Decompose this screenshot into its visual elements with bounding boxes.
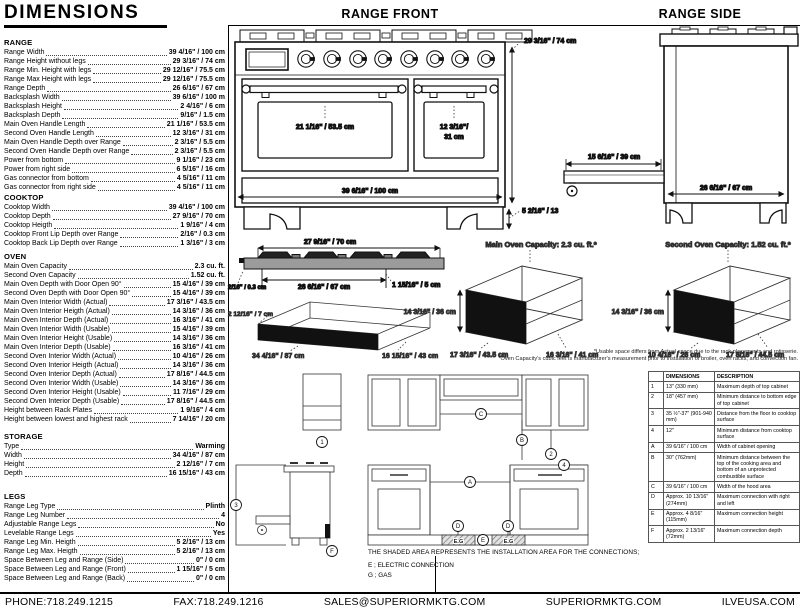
dotted-leader: [124, 287, 171, 288]
install-marker: D: [453, 521, 464, 532]
spec-value: 2 3/16" / 5.5 cm: [175, 138, 225, 147]
range-width-dim: 39 6/16" / 100 cm: [342, 188, 398, 195]
capacity-footnotes: *Usable space differs from Actual space …: [428, 349, 798, 363]
spec-row: Second Oven Interior Depth (Usable)17 8/…: [4, 397, 225, 406]
burner-pans: [258, 252, 430, 258]
spec-value: 17 3/16" / 43.5 cm: [167, 298, 225, 307]
spec-label: Main Oven Capacity: [4, 262, 67, 271]
description: Width of cabinet opening: [715, 442, 800, 452]
spec-row: Gas connector from right side4 5/16" / 1…: [4, 183, 225, 192]
spec-value: 9/16" / 1.5 cm: [180, 111, 225, 120]
range-side-diagram: 15 6/16" / 39 cm 26 6/16" / 67 cm: [564, 27, 798, 223]
dotted-leader: [128, 572, 175, 573]
col-dimensions: DIMENSIONS: [664, 372, 715, 382]
spec-label: Height: [4, 460, 24, 469]
range-front-title: RANGE FRONT: [333, 7, 446, 21]
spec-value: 0" / 0 cm: [196, 574, 225, 583]
dotted-leader: [98, 190, 175, 191]
burner-icon: [316, 30, 380, 42]
description: Minimum distance to bottom edge of top c…: [715, 392, 800, 409]
spec-row: Range Min. Height with legs29 12/16" / 7…: [4, 66, 225, 75]
col-description: DESCRIPTION: [715, 372, 800, 382]
range-front-diagram: 21 1/16" / 53.5 cm 12 3/16"/ 31 cm 39 6/…: [235, 30, 576, 229]
spec-row: TypeWarming: [4, 442, 225, 451]
marker-label: F: [330, 549, 334, 555]
dotted-leader: [62, 100, 171, 101]
spec-row: Main Oven Depth with Door Open 90°15 4/1…: [4, 280, 225, 289]
dotted-leader: [113, 350, 171, 351]
dimension-value: 35 ½"-37" (901-940 mm): [664, 409, 715, 426]
install-marker: C: [476, 409, 487, 420]
marker-label: D: [506, 524, 511, 530]
storage-height-dim: 2 12/16" / 7 cm: [228, 311, 273, 318]
spec-label: Cooktop Front Lip Depth over Range: [4, 230, 118, 239]
cooktop-depth-dim: 27 9/16" / 70 cm: [304, 239, 356, 246]
spec-section-cooktop: COOKTOPCooktop Width39 4/16" / 100 cmCoo…: [4, 193, 225, 248]
spec-value: 1 3/16" / 3 cm: [180, 239, 225, 248]
email-link[interactable]: SALES@SUPERIORMKTG.COM: [324, 596, 486, 608]
burner-connector: [382, 33, 390, 38]
marker-label: C: [479, 412, 484, 418]
dotted-leader: [93, 82, 161, 83]
oven-side-panel: [674, 290, 734, 344]
burner-knob-icon: [350, 51, 367, 67]
open-drawer: [564, 171, 664, 183]
spec-value: 14 3/16" / 36 cm: [173, 379, 225, 388]
spec-label: Range Leg Type: [4, 502, 55, 511]
dimension-value: 12": [664, 426, 715, 443]
dotted-leader: [46, 55, 166, 56]
burner-knob-icon: [427, 51, 444, 67]
marker-label: B: [520, 438, 524, 444]
table-row: C39 6/16" / 100 cmWidth of the hood area: [649, 482, 800, 492]
spec-label: Space Between Leg and Range (Back): [4, 574, 125, 583]
install-marker: 3: [231, 500, 242, 511]
range-side-body: [290, 472, 330, 538]
spec-row: Backsplash Depth9/16" / 1.5 cm: [4, 111, 225, 120]
second-oven-handle: [422, 86, 486, 93]
dotted-leader: [120, 237, 178, 238]
description: Maximum depth of top cabinet: [715, 382, 800, 392]
description: Width of the hood area: [715, 482, 800, 492]
spec-label: Range Leg Max. Heigth: [4, 547, 78, 556]
description: Maximum connection height: [715, 509, 800, 526]
front-lip-dim: 2/16" / 0.3 cm: [228, 285, 266, 291]
installation-note: THE SHADED AREA REPRESENTS THE INSTALLAT…: [368, 549, 643, 556]
install-marker: E: [478, 535, 489, 546]
main-oven-capacity-title: Main Oven Capacity: 2.3 cu. ft.*: [485, 240, 596, 249]
spec-label: Second Oven Interior Depth (Actual): [4, 370, 117, 379]
spec-row: Range Leg Number4: [4, 511, 225, 520]
install-marker: F: [327, 546, 338, 557]
install-marker: B: [517, 435, 528, 446]
dotted-leader: [69, 269, 193, 270]
side-front-leg: [666, 203, 692, 223]
spec-value: 15 4/16" / 39 cm: [173, 280, 225, 289]
spec-row: Main Oven Interior Width (Actual)17 3/16…: [4, 298, 225, 307]
spec-label: Second Oven Interior Width (Usable): [4, 379, 118, 388]
dotted-leader: [88, 64, 171, 65]
spec-value: 14 3/16" / 36 cm: [173, 361, 225, 370]
spec-value: 2 4/16" / 6 cm: [180, 102, 225, 111]
spec-value: 1 15/16" / 5 cm: [177, 565, 225, 574]
upper-right-cabinet: [522, 375, 588, 430]
spec-label: Power from right side: [4, 165, 70, 174]
door-open-dim: 15 6/16" / 39 cm: [588, 154, 640, 161]
install-marker: A: [465, 477, 476, 488]
burner-pan-icon: [304, 252, 338, 258]
cooktop-slab: [660, 34, 798, 46]
install-marker: 4: [559, 460, 570, 471]
dotted-leader: [65, 163, 174, 164]
range-depth-dim: 26 6/16" / 67 cm: [700, 185, 752, 192]
dotted-leader: [62, 118, 178, 119]
installation-diagram: E.G E.G 13FCB24ADDE: [228, 368, 593, 563]
burner-connector: [458, 33, 466, 38]
dotted-leader: [118, 359, 171, 360]
table-row: 218" (457 mm)Minimum distance to bottom …: [649, 392, 800, 409]
dotted-leader: [110, 323, 170, 324]
dotted-leader: [47, 91, 170, 92]
row-id: 3: [649, 409, 664, 426]
dotted-leader: [91, 181, 175, 182]
spec-section-storage: STORAGETypeWarmingWidth34 4/16" / 87 cmH…: [4, 432, 225, 478]
dotted-leader: [120, 368, 170, 369]
spec-value: 11 7/16" / 29 cm: [173, 388, 225, 397]
section-title: COOKTOP: [4, 193, 225, 203]
dotted-leader: [131, 154, 172, 155]
dotted-leader: [114, 341, 170, 342]
connection-box: [325, 524, 330, 538]
table-row: FApprox. 2 13/16" (72mm)Maximum connecti…: [649, 526, 800, 543]
spec-label: Second Oven Interior Width (Actual): [4, 352, 116, 361]
second-oven-door: 12 3/16"/ 31 cm: [414, 79, 498, 171]
dotted-leader: [109, 305, 164, 306]
website-link[interactable]: SUPERIORMKTG.COM: [546, 596, 662, 608]
spec-label: Main Oven Depth with Door Open 90°: [4, 280, 122, 289]
spec-row: Second Oven Interior Heigth (Actual)14 3…: [4, 361, 225, 370]
spec-row: Height between Rack Plates1 9/16" / 4 cm: [4, 406, 225, 415]
burner-pan-icon: [350, 252, 384, 258]
spec-value: 4 5/16" / 11 cm: [177, 183, 225, 192]
spec-row: Second Oven Capacity1.52 cu. ft.: [4, 271, 225, 280]
burner-knob-icon: [375, 51, 392, 67]
dimension-value: 30" (762mm): [664, 453, 715, 482]
spec-value: 16 3/16" / 41 cm: [173, 316, 225, 325]
description: Minimum distance from cooktop surface: [715, 426, 800, 443]
install-marker: 1: [317, 437, 328, 448]
spec-row: Main Oven Interior Height (Usable)14 3/1…: [4, 334, 225, 343]
spec-row: Levelable Range LegsYes: [4, 529, 225, 538]
back-lip-dim: 1 15/16" / 5 cm: [392, 282, 440, 289]
spec-row: Main Oven Capacity2.3 cu. ft.: [4, 262, 225, 271]
second-oven-capacity-diagram: Second Oven Capacity: 1.52 cu. ft.* 14 3…: [612, 240, 791, 359]
dotted-leader: [112, 332, 171, 333]
burner-cap-icon: [756, 27, 766, 30]
spec-value: 4 5/16" / 11 cm: [177, 174, 225, 183]
spec-value: 29 3/16" / 74 cm: [173, 57, 225, 66]
marker-label: D: [456, 524, 461, 530]
install-marker: D: [503, 521, 514, 532]
main-handle-dim: 21 1/16" / 53.5 cm: [296, 124, 354, 131]
spec-label: Width: [4, 451, 22, 460]
description: Distance from the floor to cooktop surfa…: [715, 409, 800, 426]
table-row: 335 ½"-37" (901-940 mm)Distance from the…: [649, 409, 800, 426]
spec-row: Second Oven Interior Height (Usable)11 7…: [4, 388, 225, 397]
left-leg: [244, 207, 300, 229]
table-row: EApprox. 4 8/16" (115mm)Maximum connecti…: [649, 509, 800, 526]
table-row: DApprox. 10 13/16" (274mm)Maximum connec…: [649, 492, 800, 509]
spec-label: Second Oven Capacity: [4, 271, 76, 280]
dotted-leader: [132, 296, 170, 297]
spec-label: Height between Rack Plates: [4, 406, 92, 415]
spec-row: Gas connector from bottom4 5/16" / 11 cm: [4, 174, 225, 183]
spec-label: Range Max Height with legs: [4, 75, 91, 84]
spec-section-range: RANGERange Width39 4/16" / 100 cmRange H…: [4, 38, 225, 192]
dimension-value: 39 6/16" / 100 cm: [664, 442, 715, 452]
dotted-leader: [24, 458, 171, 459]
spec-row: Space Between Leg and Range (Back)0" / 0…: [4, 574, 225, 583]
dotted-leader: [94, 413, 178, 414]
spec-row: Adjustable Range LegsNo: [4, 520, 225, 529]
row-id: 1: [649, 382, 664, 392]
dimension-value: Approx. 10 13/16" (274mm): [664, 492, 715, 509]
burner-knob-icon: [452, 51, 469, 67]
dotted-leader: [54, 228, 178, 229]
spec-row: Width34 4/16" / 87 cm: [4, 451, 225, 460]
spec-label: Height between lowest and highest rack: [4, 415, 128, 424]
spec-label: Depth: [4, 469, 23, 478]
phone-label: PHONE:718.249.1215: [5, 596, 113, 608]
legend-electric: E ; ELECTRIC CONNECTION: [368, 562, 454, 569]
burner-pan-icon: [258, 252, 292, 258]
wall-cabinet: [303, 374, 341, 430]
row-id: F: [649, 526, 664, 543]
col-id: [649, 372, 664, 382]
spec-value: 2/16" / 0.3 cm: [180, 230, 225, 239]
dotted-leader: [93, 73, 161, 74]
side-burner-strip: [672, 27, 774, 34]
spec-label: Space Between Leg and Range (Front): [4, 565, 126, 574]
spec-label: Main Oven Interior Depth (Usable): [4, 343, 111, 352]
footnote: *Usable space differs from Actual space …: [428, 349, 798, 356]
spec-row: Backsplash Height2 4/16" / 6 cm: [4, 102, 225, 111]
dotted-leader: [121, 404, 165, 405]
spec-value: 1.52 cu. ft.: [191, 271, 225, 280]
burner-strip: [240, 30, 532, 42]
reference-table: DIMENSIONS DESCRIPTION 113" (330 mm)Maxi…: [648, 371, 800, 543]
dotted-leader: [123, 395, 171, 396]
spec-row: Range Leg Max. Heigth5 2/16" / 13 cm: [4, 547, 225, 556]
second-oven-capacity-title: Second Oven Capacity: 1.52 cu. ft.*: [665, 240, 791, 249]
burner-cap-icon: [680, 27, 690, 30]
burner-knob-icon: [478, 51, 495, 67]
spec-row: Range Max Height with legs29 12/16" / 75…: [4, 75, 225, 84]
contact-footer: PHONE:718.249.1215 FAX:718.249.1216 SALE…: [0, 592, 800, 610]
spec-row: Second Oven Handle Depth over Range2 3/1…: [4, 147, 225, 156]
dimension-value: 39 6/16" / 100 cm: [664, 482, 715, 492]
spec-value: 12 3/16" / 31 cm: [173, 129, 225, 138]
row-id: C: [649, 482, 664, 492]
spec-value: 4: [221, 511, 225, 520]
marker-label: E: [481, 538, 485, 544]
side-body: [664, 46, 788, 203]
spec-label: Space Between Leg and Range (Side): [4, 556, 123, 565]
row-id: 4: [649, 426, 664, 443]
burner-cap-icon: [718, 27, 728, 30]
range-diagrams: 21 1/16" / 53.5 cm 12 3/16"/ 31 cm 39 6/…: [228, 26, 800, 246]
spec-label: Gas connector from right side: [4, 183, 96, 192]
website-link-2[interactable]: ILVEUSA.COM: [722, 596, 795, 608]
spec-label: Backsplash Width: [4, 93, 60, 102]
spec-label: Gas connector from bottom: [4, 174, 89, 183]
upper-left-cabinet: [368, 375, 440, 430]
spec-label: Cooktop Depth: [4, 212, 51, 221]
dotted-leader: [57, 509, 203, 510]
spec-value: No: [216, 520, 225, 529]
spec-value: 7 14/16" / 20 cm: [173, 415, 225, 424]
install-side-view: [236, 374, 341, 545]
range-height-dim: 29 3/16" / 74 cm: [524, 38, 576, 45]
spec-label: Cooktop Width: [4, 203, 50, 212]
spec-row: Cooktop Back Lip Depth over Range1 3/16"…: [4, 239, 225, 248]
dotted-leader: [127, 581, 194, 582]
spec-row: Cooktop Depth27 9/16" / 70 cm: [4, 212, 225, 221]
install-elevation: [368, 375, 588, 545]
spec-row: Power from right side6 5/16" / 16 cm: [4, 165, 225, 174]
spec-label: Second Oven Interior Height (Usable): [4, 388, 121, 397]
spec-value: 26 6/16" / 67 cm: [173, 84, 225, 93]
spec-value: 27 9/16" / 70 cm: [173, 212, 225, 221]
storage-width-dim: 34 4/16" / 87 cm: [252, 353, 304, 360]
spec-row: Space Between Leg and Range (Side)0" / 0…: [4, 556, 225, 565]
spec-value: 10 4/16" / 26 cm: [173, 352, 225, 361]
spec-row: Main Oven Interior Depth (Actual)16 3/16…: [4, 316, 225, 325]
cooktop-slab-profile: [244, 258, 444, 269]
dotted-leader: [52, 210, 167, 211]
dotted-leader: [26, 467, 174, 468]
description: Minimum distance between the top of the …: [715, 453, 800, 482]
spec-value: 34 4/16" / 87 cm: [173, 451, 225, 460]
burner-pan-icon: [396, 252, 430, 258]
description: Maximum connection with right and left: [715, 492, 800, 509]
burner-connector: [306, 33, 314, 38]
dimension-value: 18" (457 mm): [664, 392, 715, 409]
spec-label: Range Leg Min. Heigth: [4, 538, 76, 547]
spec-label: Backsplash Depth: [4, 111, 60, 120]
dotted-leader: [78, 278, 189, 279]
right-leg: [447, 207, 503, 229]
dotted-leader: [78, 527, 213, 528]
spec-section-legs: LEGSRange Leg TypePlinthRange Leg Number…: [4, 492, 225, 583]
spec-label: Second Oven Depth with Door Open 90°: [4, 289, 130, 298]
spec-value: Plinth: [206, 502, 225, 511]
spec-value: Warming: [195, 442, 225, 451]
second-handle-dim-2: 31 cm: [444, 134, 464, 141]
grate-icon: [384, 255, 392, 259]
dotted-leader: [78, 545, 175, 546]
spec-row: Depth16 15/16" / 43 cm: [4, 469, 225, 478]
spec-label: Backsplash Height: [4, 102, 62, 111]
table-row: 113" (330 mm)Maximum depth of top cabine…: [649, 382, 800, 392]
leg-height-dim: 5 2/16" / 13: [522, 208, 559, 215]
spec-label: Second Oven Interior Depth (Usable): [4, 397, 119, 406]
spec-row: Cooktop Width39 4/16" / 100 cm: [4, 203, 225, 212]
install-marker: 2: [546, 449, 557, 460]
row-id: 2: [649, 392, 664, 409]
spec-row: Power from bottom9 1/16" / 23 cm: [4, 156, 225, 165]
dotted-leader: [53, 219, 171, 220]
section-title: STORAGE: [4, 432, 225, 442]
spec-row: Second Oven Interior Depth (Actual)17 8/…: [4, 370, 225, 379]
row-id: B: [649, 453, 664, 482]
spec-row: Main Oven Handle Depth over Range2 3/16"…: [4, 138, 225, 147]
burner-icon: [240, 30, 304, 42]
table-header-row: DIMENSIONS DESCRIPTION: [649, 372, 800, 382]
cooktop-profile-diagram: 27 9/16" / 70 cm 2/16" / 0.3 cm 26 6/16"…: [228, 239, 444, 291]
spec-value: 29 12/16" / 75.5 cm: [163, 75, 225, 84]
spec-label: Main Oven Handle Length: [4, 120, 85, 129]
spec-row: Height2 12/16" / 7 cm: [4, 460, 225, 469]
spec-value: 29 12/16" / 75.5 cm: [163, 66, 225, 75]
spec-value: 5 2/16" / 13 cm: [177, 547, 225, 556]
spec-value: 2.3 cu. ft.: [195, 262, 225, 271]
dotted-leader: [120, 386, 170, 387]
spec-row: Backsplash Width39 6/16" / 100 m: [4, 93, 225, 102]
dotted-leader: [125, 563, 194, 564]
spec-value: 15 4/16" / 39 cm: [173, 289, 225, 298]
spec-row: Second Oven Handle Length12 3/16" / 31 c…: [4, 129, 225, 138]
dimension-value: Approx. 4 8/16" (115mm): [664, 509, 715, 526]
spec-label: Second Oven Interior Heigth (Actual): [4, 361, 118, 370]
spec-row: Main Oven Interior Depth (Usable)16 3/16…: [4, 343, 225, 352]
grate-icon: [338, 255, 346, 259]
spec-label: Range Width: [4, 48, 44, 57]
spec-label: Cooktop Back Lip Depth over Range: [4, 239, 118, 248]
spec-label: Range Min. Height with legs: [4, 66, 91, 75]
spec-row: Cooktop Heigth1 9/16" / 4 cm: [4, 221, 225, 230]
oven-side-panel: [466, 290, 526, 344]
spec-value: 39 4/16" / 100 cm: [169, 203, 225, 212]
burner-knob-icon: [298, 51, 315, 67]
dimension-value: 13" (330 mm): [664, 382, 715, 392]
dotted-leader: [96, 136, 171, 137]
spec-row: Second Oven Interior Width (Usable)14 3/…: [4, 379, 225, 388]
dimensions-spec-sheet: DIMENSIONS RANGERange Width39 4/16" / 10…: [0, 0, 800, 610]
spec-row: Space Between Leg and Range (Front)1 15/…: [4, 565, 225, 574]
burner-knob-icon: [401, 51, 418, 67]
spec-label: Range Depth: [4, 84, 45, 93]
spec-value: Yes: [213, 529, 225, 538]
spec-value: 1 9/16" / 4 cm: [180, 221, 225, 230]
spec-label: Main Oven Interior Width (Usable): [4, 325, 110, 334]
spec-value: 15 4/16" / 39 cm: [173, 325, 225, 334]
spec-value: 2 3/16" / 5.5 cm: [175, 147, 225, 156]
spec-value: 2 12/16" / 7 cm: [177, 460, 225, 469]
spec-label: Main Oven Interior Height (Usable): [4, 334, 112, 343]
spec-label: Type: [4, 442, 19, 451]
spec-value: 16 15/16" / 43 cm: [169, 469, 225, 478]
second-oven-height-dim: 14 3/16" / 36 cm: [612, 309, 664, 316]
burner-icon: [468, 30, 532, 42]
marker-label: A: [468, 480, 472, 486]
spec-row: Range Leg TypePlinth: [4, 502, 225, 511]
spec-value: 9 1/16" / 23 cm: [177, 156, 225, 165]
section-title: RANGE: [4, 38, 225, 48]
dotted-leader: [119, 377, 165, 378]
spec-label: Second Oven Handle Length: [4, 129, 94, 138]
main-oven-height-dim: 14 3/16" / 36 cm: [404, 309, 456, 316]
